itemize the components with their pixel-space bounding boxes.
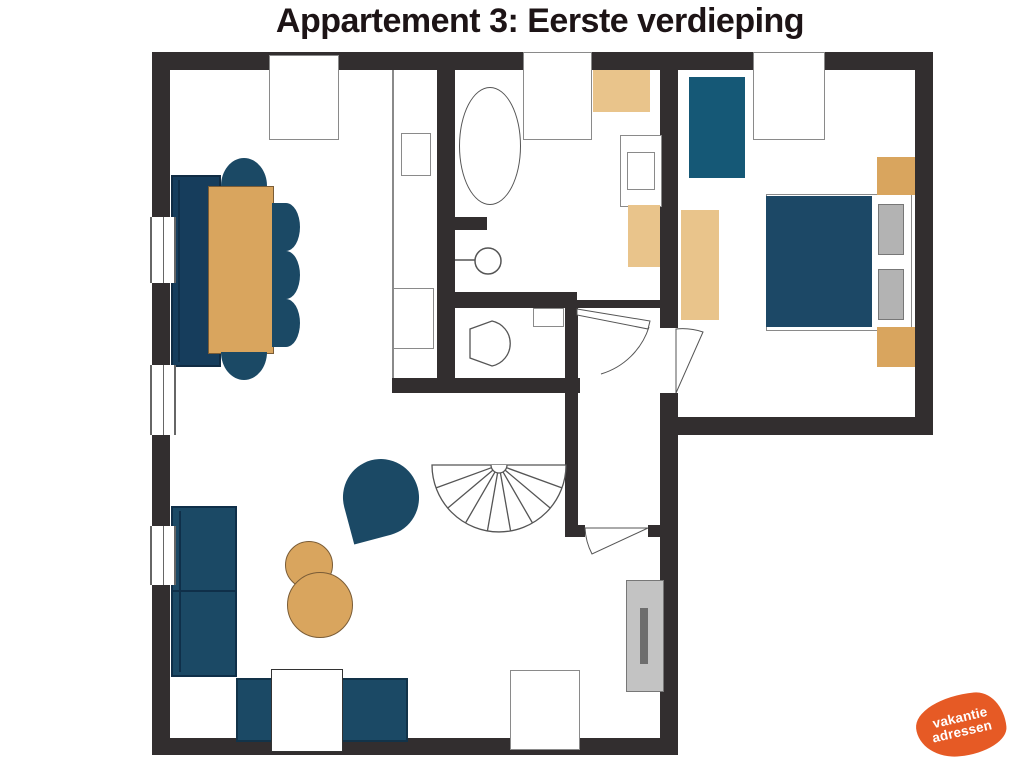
dining-table	[208, 186, 274, 354]
armchair	[334, 450, 427, 544]
wall-center-lower	[660, 393, 678, 755]
wall-hall-bottom-right	[648, 525, 660, 537]
floor-plan: Appartement 3: Eerste verdieping	[0, 0, 1024, 768]
wall-bedroom-bottom	[678, 417, 933, 435]
dining-chair	[272, 203, 300, 251]
kitchen-sink	[393, 288, 434, 349]
dining-chair	[272, 299, 300, 347]
pillow	[878, 269, 904, 320]
door-hall-living	[585, 528, 648, 554]
wall-kitchen	[437, 70, 455, 393]
sofa-back-line	[179, 511, 181, 672]
coffee-table-large	[287, 572, 353, 638]
sofa-divider	[173, 590, 235, 592]
dining-chair	[221, 352, 267, 380]
nook-bench-right	[341, 678, 408, 742]
cooktop	[401, 133, 431, 176]
wall-right	[915, 52, 933, 435]
tv-cabinet	[626, 580, 664, 692]
bath-mat	[628, 205, 660, 267]
dormer-bay-bathroom	[523, 52, 592, 140]
bathroom-sink	[455, 248, 501, 274]
nightstand	[877, 327, 915, 367]
wardrobe	[689, 77, 745, 178]
vakantieadressen-logo: vakantie adressen	[913, 689, 1009, 760]
toilet	[470, 321, 510, 366]
door-bedroom	[676, 329, 703, 393]
dormer-bay-living	[269, 55, 339, 140]
nightstand	[877, 157, 915, 195]
wall-hall-left	[565, 308, 578, 537]
door-bay-bottom	[510, 670, 580, 750]
pillow	[878, 204, 904, 255]
wall-bathroom-door-header	[577, 300, 660, 308]
wall-bath-stub	[455, 217, 487, 230]
wall-bathroom-bottom	[437, 292, 577, 308]
dormer-bay-bedroom	[753, 52, 825, 140]
wall-center-upper	[660, 52, 678, 328]
dining-chair	[272, 251, 300, 299]
door-bathroom	[577, 309, 650, 374]
nook-table	[271, 669, 343, 752]
window	[150, 526, 176, 585]
mattress	[766, 196, 872, 327]
washing-machine	[620, 135, 662, 207]
window	[150, 365, 176, 435]
desk	[681, 210, 719, 320]
dining-chair	[221, 158, 267, 186]
washer-drum	[627, 152, 655, 190]
spiral-staircase	[432, 465, 566, 532]
wall-hall-bottom-left	[565, 525, 585, 537]
bench-back-line	[178, 180, 180, 362]
toilet-cistern	[533, 308, 564, 327]
wall-bottom	[152, 738, 677, 755]
wall-toilet-bottom	[392, 378, 580, 393]
nook-bench-left	[236, 678, 275, 742]
bathtub	[459, 87, 521, 205]
tv-screen	[640, 608, 648, 664]
bath-mat	[593, 70, 650, 112]
window	[150, 217, 176, 283]
sofa	[171, 506, 237, 677]
page-title: Appartement 3: Eerste verdieping	[0, 2, 1024, 41]
